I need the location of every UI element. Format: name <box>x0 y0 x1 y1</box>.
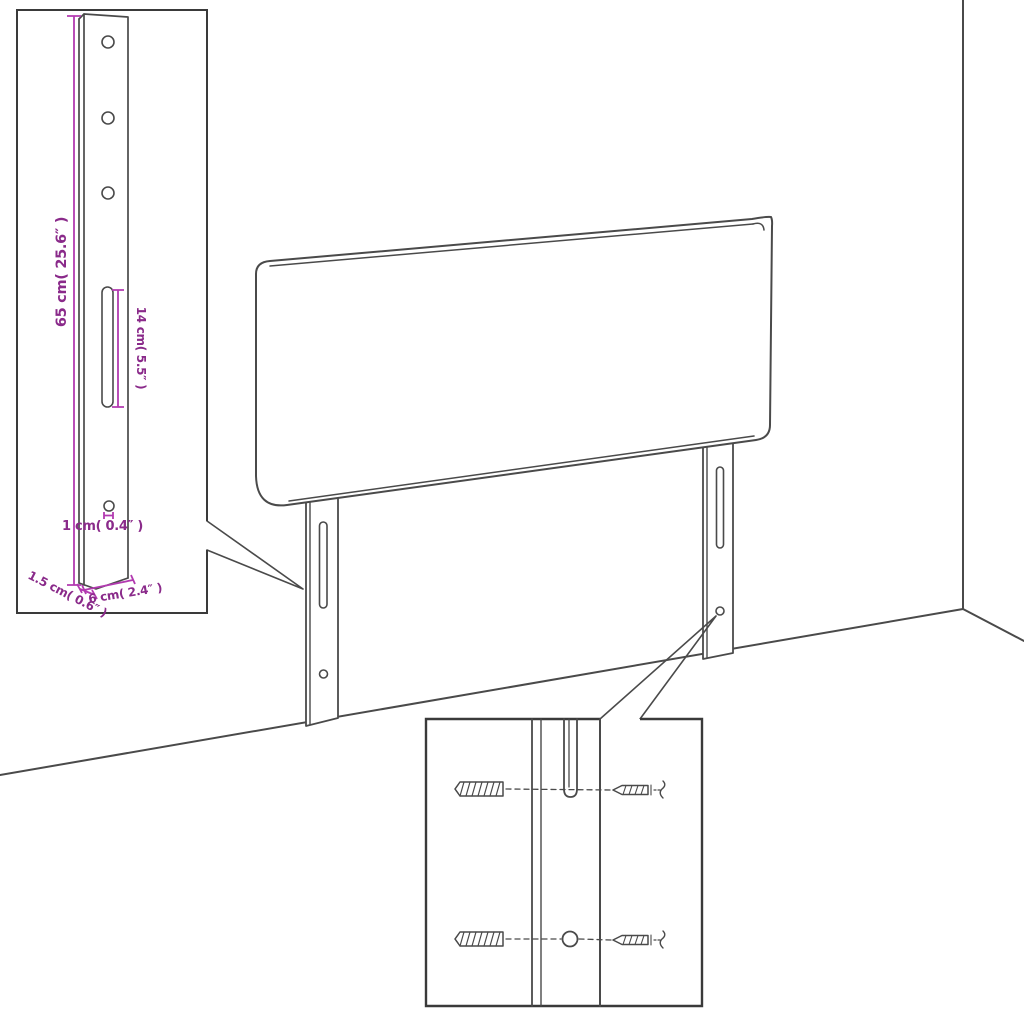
mounting-detail-inset <box>426 719 702 1006</box>
dim-label-slot: 14 cm( 5.5″ ) <box>134 307 148 390</box>
dim-label-hole: 1 cm( 0.4″ ) <box>62 519 143 534</box>
leg-detail-hole-lower <box>102 187 114 199</box>
right-mounting-leg <box>703 438 733 659</box>
dim-line-slot-14cm <box>112 290 124 407</box>
diagram-canvas: 65 cm( 25.6″ ) 14 cm( 5.5″ ) 1 cm( 0.4″ … <box>0 0 1024 1024</box>
wall-corner-diagonal-line <box>963 609 1024 641</box>
callout-wedge-right <box>600 616 716 719</box>
leg-detail-inset: 65 cm( 25.6″ ) 14 cm( 5.5″ ) 1 cm( 0.4″ … <box>17 10 207 620</box>
dim-line-hole-1cm <box>104 512 113 519</box>
leg-detail-hole-middle <box>102 112 114 124</box>
callout-wedge-left <box>207 521 303 589</box>
headboard-panel <box>256 217 772 506</box>
headboard-assembly-diagram: 65 cm( 25.6″ ) 14 cm( 5.5″ ) 1 cm( 0.4″ … <box>0 0 1024 1024</box>
leg-detail-drawing <box>79 14 128 589</box>
dim-label-height: 65 cm( 25.6″ ) <box>54 217 70 327</box>
dim-label-width: 6 cm( 2.4″ ) <box>87 580 163 605</box>
leg-detail-hole-top <box>102 36 114 48</box>
dimension-lines <box>67 16 135 599</box>
leg-detail-hole-bottom <box>104 501 114 511</box>
left-mounting-leg <box>306 488 338 726</box>
leg-detail-slot <box>102 287 113 407</box>
